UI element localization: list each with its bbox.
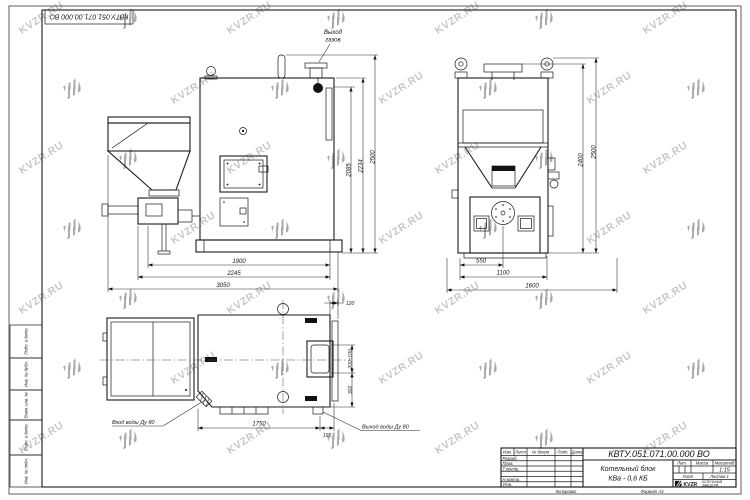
sheets-label: Листов 1 [709, 474, 729, 479]
product-title: КВа - 0,6 КБ [608, 476, 648, 483]
mass-label: Масса [696, 461, 709, 466]
drawing-sheet: KVZR.RUKVZR.RUKVZR.RUKVZR.RUKVZR.RUKVZR.… [0, 0, 750, 500]
margin-label: Инв. № подл. [24, 458, 29, 484]
dim-side-1600: 1600 [525, 284, 539, 290]
scale-value: 1:15 [719, 468, 731, 474]
copied-label: Копировал [556, 489, 577, 494]
corner-doc-number: КВТУ.051.071.00.000 ВО [49, 13, 129, 20]
water-inlet-label: Вход воды Ду 80 [112, 420, 155, 426]
top-hatch [484, 64, 522, 72]
gas-outlet-label: газов [325, 38, 340, 44]
scale-label: Масштаб [715, 461, 735, 466]
dim-top-1750: 1750 [252, 422, 266, 428]
col-docnum: № докум. [532, 450, 550, 455]
dim-side-550: 550 [476, 259, 487, 265]
sig-row: Утв. [503, 482, 513, 487]
col-data: Дата [570, 450, 583, 455]
margin-label: Инв. № дубл. [24, 361, 29, 387]
lifting-eye-icon [455, 58, 467, 70]
margin-label: Подп. и дата [24, 424, 29, 451]
col-podp: Подп. [557, 450, 568, 455]
hopper-top [103, 318, 194, 400]
side-view: 2400 2500 550 1100 1600 [447, 58, 617, 293]
dim-front-2500: 2500 [371, 150, 377, 165]
dim-front-2085: 2085 [347, 163, 353, 178]
safety-valve-icon [313, 83, 323, 93]
fuel-hopper [102, 117, 200, 254]
dim-top-302: 302 [348, 386, 354, 395]
dim-top-200: 200±100 [348, 349, 354, 370]
col-list: Лист [514, 450, 526, 455]
format-label: Формат А3 [641, 489, 665, 494]
drawing-canvas: КВТУ.051.071.00.000 ВО Подп. и дата Инв.… [0, 0, 750, 500]
dim-side-1100: 1100 [497, 271, 511, 277]
gas-outlet-flange [305, 63, 327, 68]
top-dimensions: 120 200±100 302 1750 195 Вход воды Ду 80… [112, 300, 420, 439]
logo-text: KVZR [684, 482, 698, 488]
top-view: 120 200±100 302 1750 195 Вход воды Ду 80… [100, 300, 420, 439]
level-gauge [326, 88, 332, 140]
front-dimensions: 2085 2234 2500 1900 2245 3050 [108, 55, 378, 292]
product-title: Котельный блок [601, 465, 657, 473]
col-izm: Изм. [503, 450, 512, 455]
lit-label: Лит. [676, 461, 687, 466]
furnace-door [220, 156, 268, 192]
sig-row: Т.контр. [503, 466, 520, 471]
margin-tables: Подп. и дата Инв. № дубл. Взам. инв. № П… [10, 325, 42, 487]
gas-outlet-label: Выход [324, 30, 343, 36]
margin-label: Подп. и дата [24, 328, 29, 355]
front-view: Выход газов 2085 2234 2500 [102, 30, 378, 292]
sheet-label: Лист [682, 474, 694, 479]
dim-front-2245: 2245 [226, 271, 241, 277]
dim-top-195: 195 [323, 433, 332, 439]
thermowell [278, 55, 285, 78]
lifting-eye-icon [207, 67, 216, 76]
water-outlet-label: Выход воды Ду 80 [362, 425, 410, 431]
dim-side-2400: 2400 [579, 153, 585, 168]
boiler-body-front [196, 55, 342, 252]
ash-hatch [220, 198, 248, 226]
dim-side-2500: 2500 [592, 145, 598, 160]
boiler-body-side [452, 58, 559, 258]
margin-label: Взам. инв. № [24, 392, 29, 418]
dim-front-2234: 2234 [359, 159, 365, 174]
dim-front-1900: 1900 [232, 259, 246, 265]
logo-caption: ЗАВОД РФ [702, 484, 719, 488]
dim-top-120: 120 [346, 301, 355, 307]
doc-number: КВТУ.051.071.00.000 ВО [608, 449, 710, 459]
sig-row: Пров. [503, 461, 514, 466]
title-block: Изм. Лист № докум. Подп. Дата Разраб. Пр… [501, 448, 736, 488]
boiler-top [100, 300, 348, 414]
dim-front-3050: 3050 [216, 283, 230, 289]
